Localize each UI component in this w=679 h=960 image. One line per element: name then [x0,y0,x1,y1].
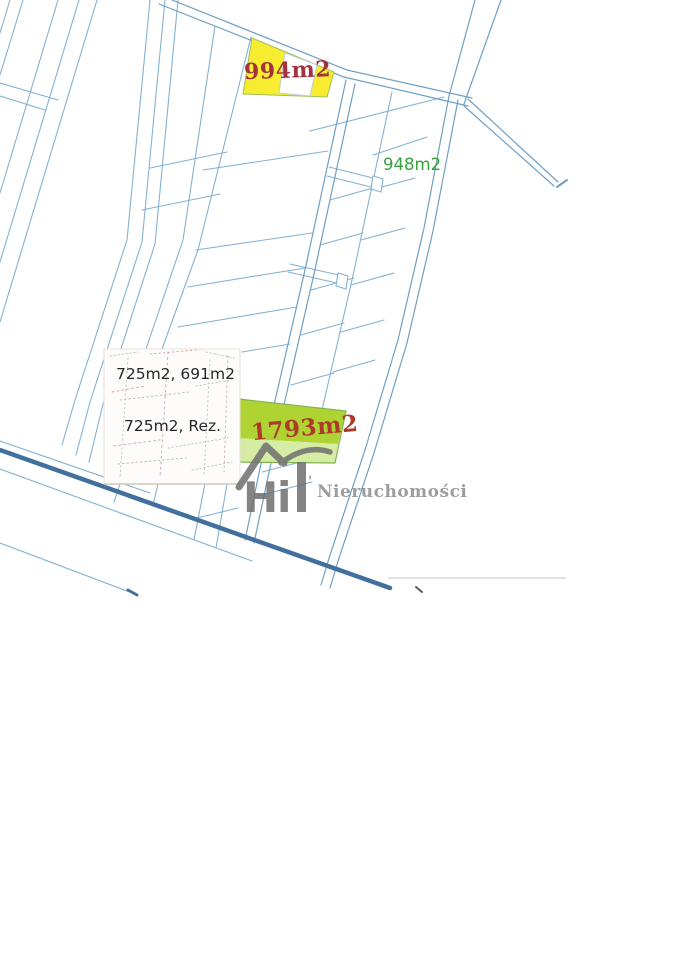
inset-label-1: 725m2, 691m2 [116,365,235,383]
logo-tick: ' [308,474,312,490]
image-edge-artifact [388,578,566,592]
area-labels: 994m2 948m2 1793m2 [244,56,441,446]
hit-logo: H i ' Nieruchomości [239,446,467,522]
logo-letter-t [297,462,306,512]
cadastral-map: 725m2, 691m2 725m2, Rez. H i ' Nieruchom… [0,0,679,960]
brand-text: Nieruchomości [317,482,467,502]
plot-map-image: 725m2, 691m2 725m2, Rez. H i ' Nieruchom… [0,0,679,960]
logo-letter-i: i [277,473,291,522]
road-end-tip [128,590,137,595]
logo-letter-h: H [243,473,278,522]
inset-label-2: 725m2, Rez. [124,417,221,435]
parcel-lines [0,0,444,594]
small-mark [416,587,422,592]
label-948: 948m2 [383,155,441,174]
inset-sketch: 725m2, 691m2 725m2, Rez. [104,349,240,484]
label-994: 994m2 [244,56,332,85]
